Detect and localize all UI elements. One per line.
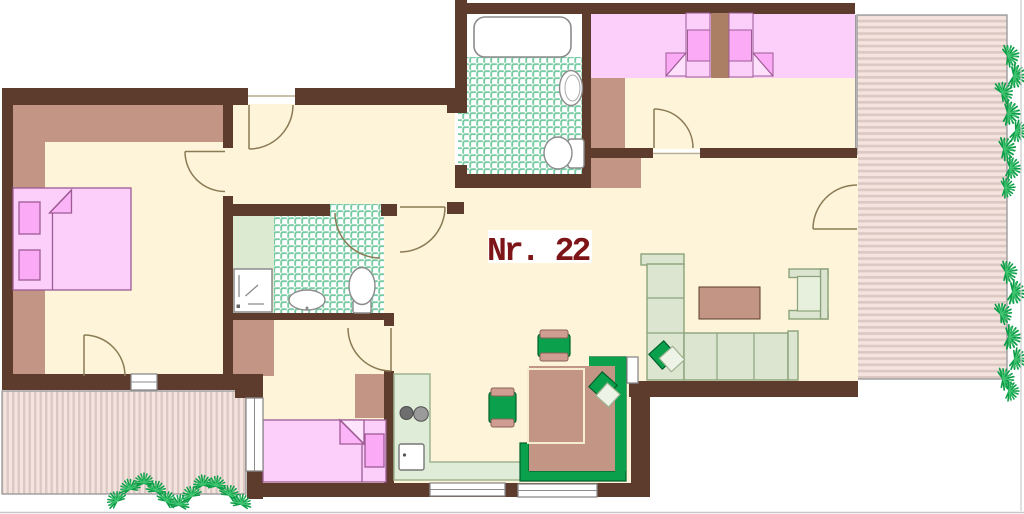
svg-text:Nr. 22: Nr. 22 bbox=[487, 233, 590, 270]
